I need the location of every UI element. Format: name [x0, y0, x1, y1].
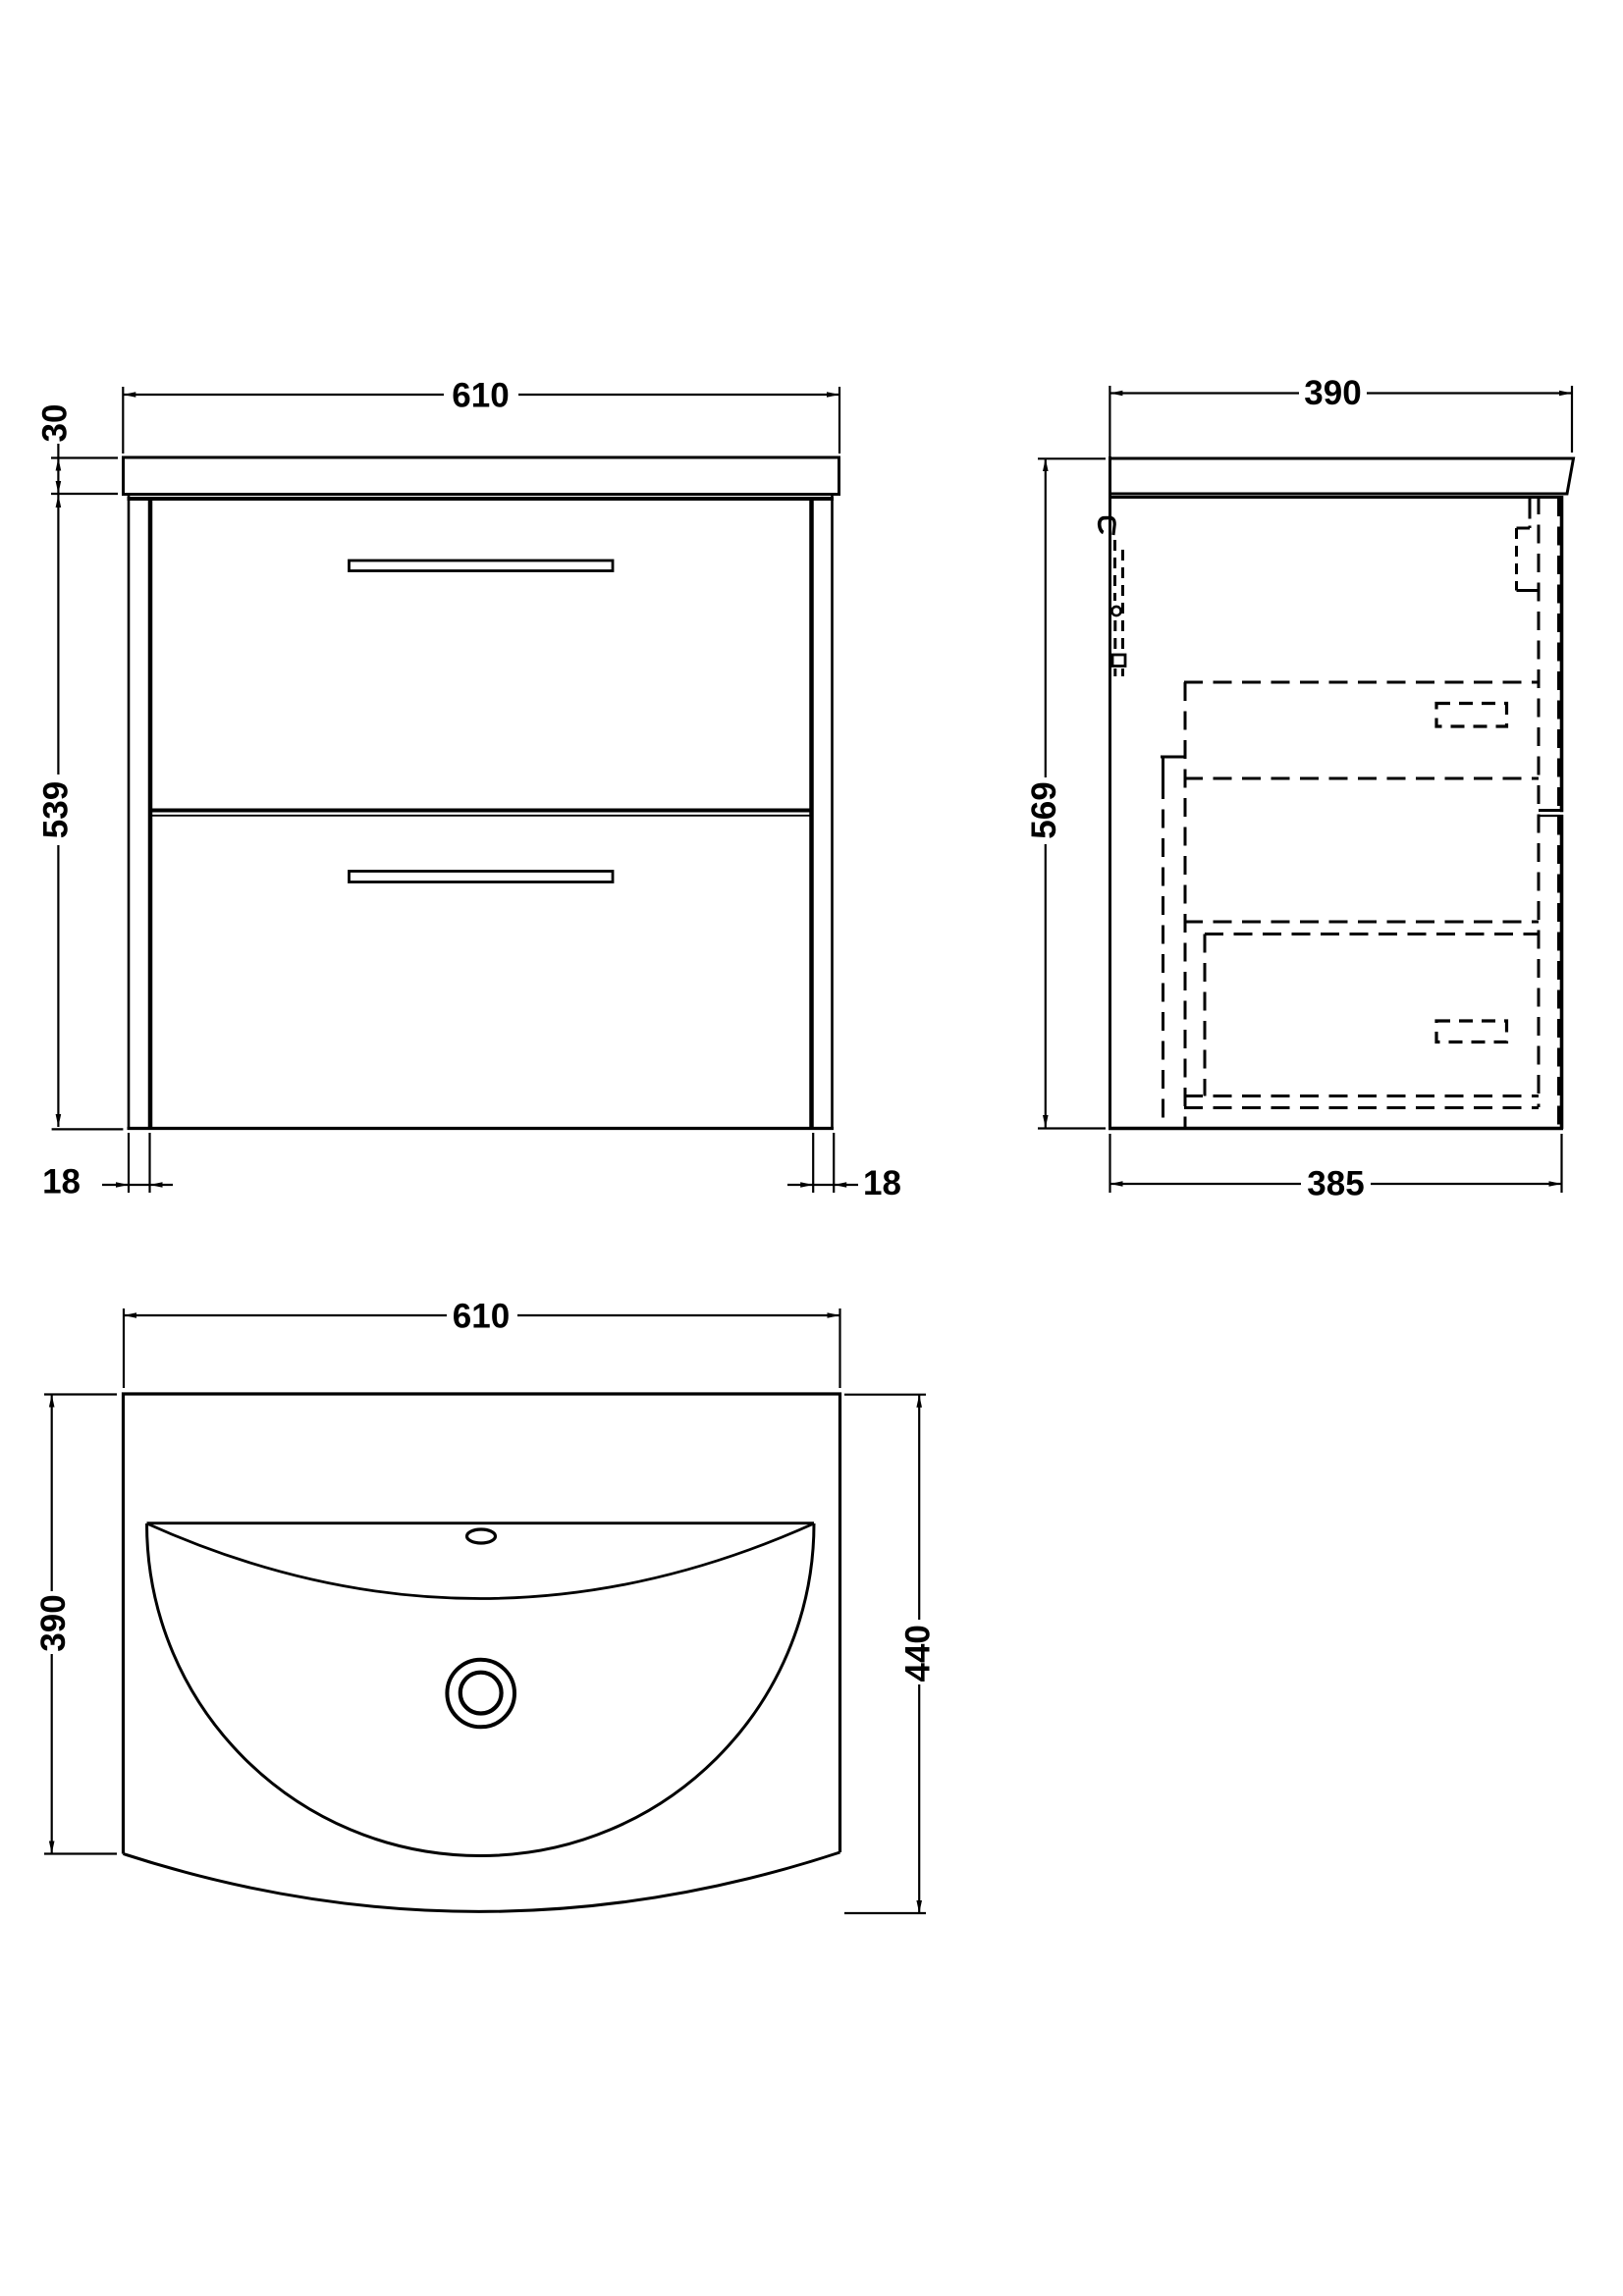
- svg-text:18: 18: [863, 1164, 901, 1202]
- svg-text:610: 610: [452, 377, 509, 415]
- svg-text:30: 30: [36, 404, 75, 443]
- svg-text:539: 539: [37, 781, 76, 838]
- svg-text:440: 440: [898, 1625, 937, 1682]
- svg-text:390: 390: [34, 1594, 73, 1651]
- svg-text:18: 18: [42, 1163, 81, 1201]
- svg-text:610: 610: [453, 1298, 510, 1336]
- svg-text:569: 569: [1025, 781, 1063, 838]
- svg-text:385: 385: [1307, 1165, 1364, 1203]
- svg-text:390: 390: [1304, 374, 1361, 412]
